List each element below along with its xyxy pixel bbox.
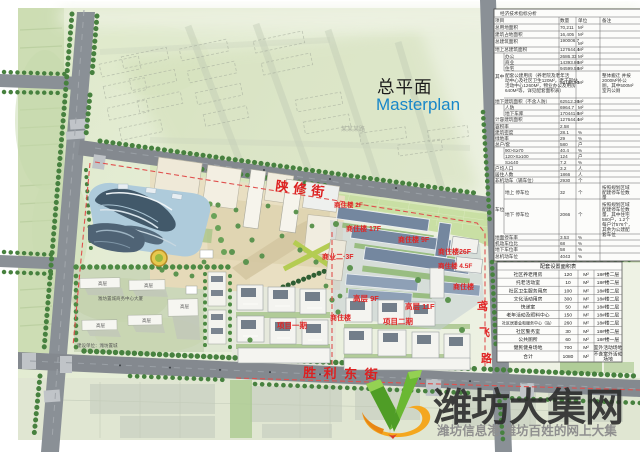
svg-text:商住楼 2F: 商住楼 2F bbox=[334, 200, 363, 209]
svg-text:M²: M² bbox=[583, 296, 589, 302]
svg-text:商住楼26F: 商住楼26F bbox=[438, 247, 472, 256]
svg-text:某某某路: 某某某路 bbox=[341, 125, 365, 133]
svg-text:社区养老用房: 社区养老用房 bbox=[514, 271, 543, 278]
svg-text:18#楼二层: 18#楼二层 bbox=[597, 328, 620, 335]
svg-text:%: % bbox=[578, 241, 582, 246]
svg-text:M²: M² bbox=[578, 80, 584, 85]
svg-text:项目一期: 项目一期 bbox=[277, 320, 307, 330]
svg-text:M²: M² bbox=[583, 280, 589, 286]
svg-text:150: 150 bbox=[564, 313, 572, 319]
svg-text:户: 户 bbox=[578, 141, 583, 148]
svg-text:%: % bbox=[578, 247, 582, 252]
svg-text:商住楼: 商住楼 bbox=[453, 282, 474, 291]
svg-text:商住楼 17F: 商住楼 17F bbox=[346, 224, 382, 233]
svg-text:%: % bbox=[578, 130, 582, 135]
svg-text:18#楼二层: 18#楼二层 bbox=[597, 287, 620, 294]
svg-text:文化活动用房: 文化活动用房 bbox=[514, 295, 543, 302]
svg-text:M²: M² bbox=[583, 272, 589, 278]
svg-text:M²: M² bbox=[583, 337, 589, 343]
svg-text:高层: 高层 bbox=[142, 317, 151, 324]
svg-text:18#楼二层: 18#楼二层 bbox=[597, 320, 620, 327]
svg-text:S≥140: S≥140 bbox=[505, 160, 519, 165]
svg-text:人防: 人防 bbox=[505, 104, 515, 111]
svg-text:个: 个 bbox=[578, 178, 583, 183]
svg-text:老年活动及照料中心: 老年活动及照料中心 bbox=[506, 312, 549, 319]
svg-text:室内公厕: 室内公厕 bbox=[602, 87, 621, 94]
svg-text:车位: 车位 bbox=[495, 206, 505, 213]
svg-text:62512.36: 62512.36 bbox=[560, 99, 580, 104]
svg-text:6964.7: 6964.7 bbox=[560, 105, 574, 110]
svg-text:潍坊置城商务中心大厦: 潍坊置城商务中心大厦 bbox=[98, 295, 143, 302]
svg-text:M²: M² bbox=[578, 66, 584, 71]
svg-text:总户/套: 总户/套 bbox=[495, 141, 510, 148]
svg-text:M²: M² bbox=[578, 32, 584, 37]
svg-text:127644.4: 127644.4 bbox=[560, 117, 580, 122]
svg-text:住宅: 住宅 bbox=[505, 65, 515, 71]
svg-text:商住楼: 商住楼 bbox=[330, 313, 351, 322]
svg-text:建设单位：潍坊置城: 建设单位：潍坊置城 bbox=[77, 342, 118, 349]
svg-text:300: 300 bbox=[564, 296, 572, 302]
svg-text:量: 量 bbox=[602, 194, 607, 201]
svg-text:户: 户 bbox=[578, 153, 583, 160]
svg-text:M²: M² bbox=[578, 111, 584, 116]
svg-text:机动车位比: 机动车位比 bbox=[495, 240, 518, 247]
svg-text:16,405: 16,405 bbox=[560, 32, 574, 37]
svg-text:高层: 高层 bbox=[96, 322, 105, 329]
svg-text:18#楼二层: 18#楼二层 bbox=[597, 295, 620, 302]
svg-text:地上总建筑面积: 地上总建筑面积 bbox=[495, 46, 528, 53]
svg-text:非机动车（辆车位）: 非机动车（辆车位） bbox=[495, 177, 536, 184]
svg-text:94599.58: 94599.58 bbox=[560, 66, 580, 71]
svg-text:计容建筑面积: 计容建筑面积 bbox=[495, 116, 523, 123]
svg-text:总建筑面积: 总建筑面积 bbox=[495, 38, 518, 45]
svg-text:M²: M² bbox=[583, 305, 589, 311]
svg-text:经济技术指标分析: 经济技术指标分析 bbox=[500, 10, 537, 17]
svg-text:70,211: 70,211 bbox=[560, 25, 574, 30]
svg-text:项目二期: 项目二期 bbox=[383, 316, 413, 326]
svg-text:Masterplan: Masterplan bbox=[376, 95, 460, 114]
svg-text:地下车位率: 地下车位率 bbox=[495, 246, 518, 253]
svg-text:高层: 高层 bbox=[180, 303, 189, 310]
svg-text:260: 260 bbox=[564, 321, 572, 327]
svg-text:套车位: 套车位 bbox=[602, 231, 616, 238]
svg-text:总机动车位: 总机动车位 bbox=[495, 253, 518, 260]
svg-text:18#楼二层: 18#楼二层 bbox=[597, 271, 620, 278]
svg-text:M²: M² bbox=[578, 47, 584, 52]
svg-text:M²: M² bbox=[578, 99, 584, 104]
svg-text:个: 个 bbox=[578, 190, 583, 195]
svg-text:户均人口: 户均人口 bbox=[495, 165, 514, 172]
svg-text:2686.33: 2686.33 bbox=[560, 54, 577, 59]
svg-text:40.4: 40.4 bbox=[560, 148, 569, 153]
svg-text:%: % bbox=[578, 254, 582, 259]
svg-text:M²: M² bbox=[583, 345, 589, 351]
svg-text:商业二·3F: 商业二·3F bbox=[322, 252, 354, 261]
svg-text:地下 停车位: 地下 停车位 bbox=[505, 211, 530, 218]
svg-text:2.58: 2.58 bbox=[560, 124, 569, 129]
svg-text:个: 个 bbox=[578, 212, 583, 217]
svg-text:高层: 高层 bbox=[144, 282, 153, 289]
svg-text:不含室外活动: 不含室外活动 bbox=[594, 351, 623, 358]
svg-text:建筑占地面积: 建筑占地面积 bbox=[495, 31, 523, 38]
svg-text:飞: 飞 bbox=[479, 326, 490, 339]
svg-text:居住人数: 居住人数 bbox=[495, 171, 514, 178]
svg-text:60: 60 bbox=[565, 337, 571, 343]
svg-text:580: 580 bbox=[560, 142, 568, 147]
svg-text:总平面: 总平面 bbox=[377, 77, 433, 97]
svg-text:商业: 商业 bbox=[505, 59, 515, 66]
svg-text:鸢: 鸢 bbox=[477, 299, 488, 313]
svg-text:M²: M² bbox=[578, 41, 584, 46]
svg-text:M²: M² bbox=[583, 329, 589, 335]
svg-text:18#楼二层: 18#楼二层 bbox=[597, 304, 620, 311]
svg-text:28.1: 28.1 bbox=[560, 130, 569, 135]
svg-text:总用地面积: 总用地面积 bbox=[495, 24, 518, 31]
svg-text:32: 32 bbox=[560, 190, 566, 195]
svg-text:合计: 合计 bbox=[523, 353, 533, 360]
svg-text:M²: M² bbox=[583, 288, 589, 294]
svg-text:58: 58 bbox=[560, 247, 566, 252]
svg-text:18#楼二层: 18#楼二层 bbox=[597, 312, 620, 319]
svg-text:4043: 4043 bbox=[560, 254, 571, 259]
svg-text:商住楼 9F: 商住楼 9F bbox=[398, 235, 430, 244]
svg-text:170441.6: 170441.6 bbox=[560, 111, 580, 116]
svg-text:124: 124 bbox=[560, 154, 568, 159]
svg-text:100: 100 bbox=[564, 288, 572, 294]
svg-text:人: 人 bbox=[578, 166, 583, 171]
svg-text:700: 700 bbox=[564, 345, 572, 351]
svg-text:M²: M² bbox=[578, 25, 584, 30]
svg-text:办公: 办公 bbox=[505, 53, 515, 60]
svg-text:托老活动室: 托老活动室 bbox=[516, 279, 540, 286]
svg-text:120>S≥100: 120>S≥100 bbox=[505, 154, 529, 159]
svg-text:30: 30 bbox=[565, 329, 571, 335]
svg-text:人: 人 bbox=[578, 172, 583, 177]
svg-text:10: 10 bbox=[565, 280, 571, 286]
svg-text:18#楼一层: 18#楼一层 bbox=[597, 336, 620, 343]
svg-text:社区居委会和服务中心（站）: 社区居委会和服务中心（站） bbox=[502, 320, 554, 326]
svg-text:路: 路 bbox=[481, 351, 493, 365]
svg-text:室外活动场地: 室外活动场地 bbox=[594, 344, 623, 351]
svg-text:68: 68 bbox=[560, 241, 566, 246]
svg-text:数量: 数量 bbox=[560, 17, 570, 24]
svg-text:商住楼 4.5F: 商住楼 4.5F bbox=[438, 261, 472, 270]
svg-text:高层 9F: 高层 9F bbox=[353, 293, 379, 303]
svg-text:7.2: 7.2 bbox=[560, 160, 567, 165]
svg-text:社区警务室: 社区警务室 bbox=[516, 328, 540, 335]
svg-text:建筑密度: 建筑密度 bbox=[495, 129, 514, 136]
svg-text:健民健身场地: 健民健身场地 bbox=[514, 344, 543, 351]
svg-text:社区卫生服务用房: 社区卫生服务用房 bbox=[509, 287, 548, 294]
svg-text:高层: 高层 bbox=[98, 280, 107, 287]
svg-text:%: % bbox=[578, 148, 582, 153]
svg-text:29: 29 bbox=[560, 136, 566, 141]
svg-text:M²: M² bbox=[578, 105, 584, 110]
svg-text:公共厕所: 公共厕所 bbox=[518, 336, 537, 343]
svg-text:2930: 2930 bbox=[560, 178, 571, 183]
svg-text:地下车库: 地下车库 bbox=[505, 110, 524, 117]
svg-text:%: % bbox=[578, 136, 582, 141]
svg-text:3.2: 3.2 bbox=[560, 166, 567, 171]
svg-text:M²: M² bbox=[578, 54, 584, 59]
svg-text:M²: M² bbox=[583, 354, 589, 360]
svg-text:14393.86: 14393.86 bbox=[560, 60, 580, 65]
svg-text:3.53: 3.53 bbox=[560, 235, 569, 240]
svg-text:场地: 场地 bbox=[603, 356, 613, 363]
svg-text:%: % bbox=[578, 160, 582, 165]
svg-text:容积率: 容积率 bbox=[495, 123, 509, 130]
svg-text:高层 11F: 高层 11F bbox=[405, 301, 435, 311]
svg-text:53185.93: 53185.93 bbox=[560, 80, 580, 85]
svg-text:地上 停车位: 地上 停车位 bbox=[505, 189, 530, 196]
svg-text:备注: 备注 bbox=[602, 17, 612, 24]
svg-text:绿地率: 绿地率 bbox=[495, 135, 509, 142]
svg-text:127644.4: 127644.4 bbox=[560, 47, 580, 52]
svg-text:M²: M² bbox=[578, 60, 584, 65]
svg-text:190006.7: 190006.7 bbox=[560, 38, 580, 43]
svg-text:M²: M² bbox=[578, 117, 584, 122]
svg-text:地面停车率: 地面停车率 bbox=[495, 234, 518, 241]
svg-text:%: % bbox=[578, 235, 582, 240]
svg-text:1866: 1866 bbox=[560, 172, 571, 177]
svg-text:18#楼二层: 18#楼二层 bbox=[597, 279, 620, 286]
svg-text:快递室: 快递室 bbox=[521, 304, 536, 311]
svg-text:地下建筑面积（不含人防）: 地下建筑面积（不含人防） bbox=[495, 98, 550, 105]
svg-text:M²: M² bbox=[583, 321, 589, 327]
svg-text:单位: 单位 bbox=[578, 17, 588, 24]
svg-text:50: 50 bbox=[565, 305, 571, 311]
svg-text:90>S≥70: 90>S≥70 bbox=[505, 148, 524, 153]
svg-text:1080: 1080 bbox=[563, 354, 574, 360]
svg-text:2066: 2066 bbox=[560, 212, 571, 217]
svg-text:120: 120 bbox=[564, 272, 572, 278]
svg-text:配套设置面积表: 配套设置面积表 bbox=[540, 262, 577, 270]
svg-text:640M²等，详见配套面积表）: 640M²等，详见配套面积表） bbox=[505, 87, 564, 94]
svg-text:M²: M² bbox=[583, 313, 589, 319]
svg-text:其中: 其中 bbox=[495, 73, 505, 80]
